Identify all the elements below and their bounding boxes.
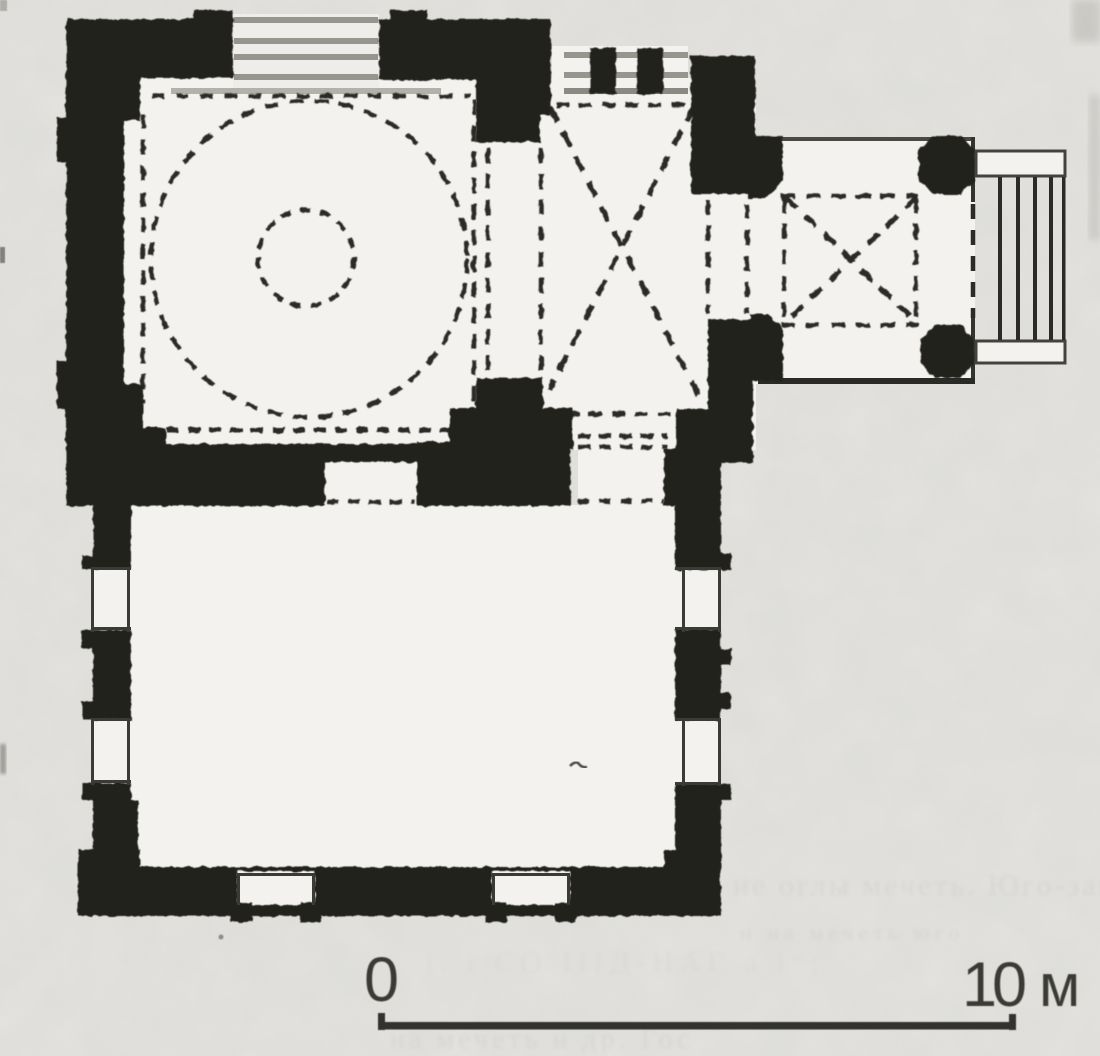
svg-text:і. і СО ІІІД-НАГ а і“;: і. і СО ІІІД-НАГ а і“; <box>425 946 825 979</box>
svg-text:0: 0 <box>992 950 1027 1020</box>
svg-text:0: 0 <box>364 945 399 1015</box>
svg-text:не оглы мечеть. Юго-зап: не оглы мечеть. Юго-зап <box>733 869 1100 902</box>
svg-text:и на мечеть юго: и на мечеть юго <box>740 920 964 945</box>
svg-text:м: м <box>1039 952 1080 1019</box>
